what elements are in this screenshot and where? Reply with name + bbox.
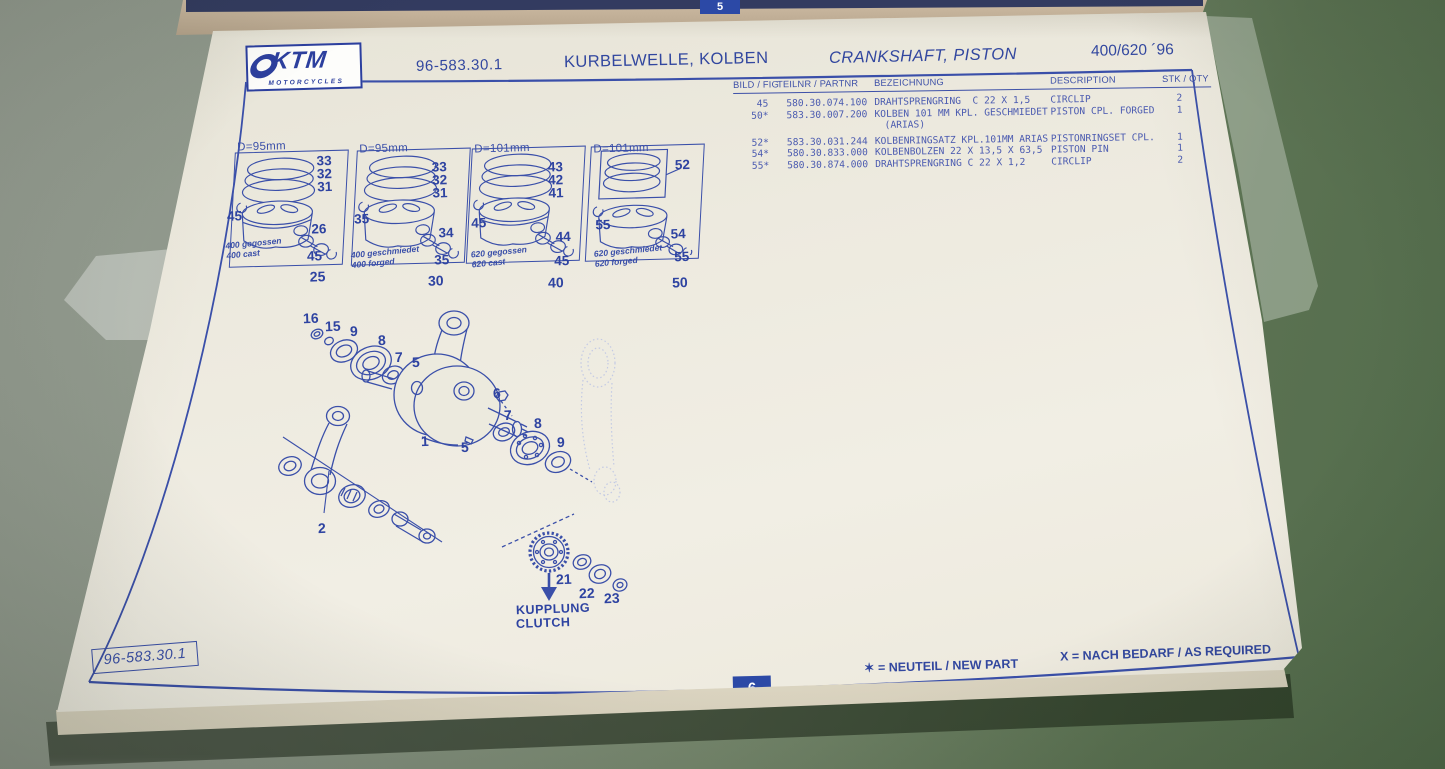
- ktm-logo: KTM MOTORCYCLES: [245, 42, 362, 91]
- part-number-label: 7: [395, 349, 403, 365]
- washer-near-21: [571, 552, 593, 571]
- seal-ring-9-right: [542, 448, 574, 476]
- page-title-english: CRANKSHAFT, PISTON: [829, 45, 1017, 68]
- piston-panel-620-cast: D=101mm 43 42 41 45 44: [467, 130, 595, 293]
- circlip-16: [310, 327, 325, 340]
- part-number-label: 55: [674, 249, 689, 264]
- part-number-label: 35: [354, 211, 369, 226]
- part-number-label: 7: [504, 407, 512, 423]
- part-number-label: 35: [434, 252, 449, 267]
- washer-15: [323, 336, 334, 346]
- previous-page-number-tab: 5: [700, 0, 740, 14]
- part-number-label: 45: [307, 248, 322, 263]
- document-number: 96-583.30.1: [416, 56, 503, 75]
- crankshaft-1: [362, 311, 528, 446]
- crankshaft-diagram: [276, 311, 629, 601]
- assembly-number: 50: [645, 273, 715, 291]
- model-year: 400/620 ´96: [1091, 41, 1174, 61]
- part-number-label: 22: [579, 585, 595, 602]
- piston-panel-620-forged: D=101mm 52 55 54 55: [586, 128, 714, 291]
- piston-panel-400-cast: D=95mm 33 32 31 45 26: [230, 134, 358, 297]
- clutch-caption-english: CLUTCH: [516, 615, 571, 631]
- col-desc-en: DESCRIPTION: [1050, 74, 1162, 86]
- part-number-label: 23: [604, 590, 620, 607]
- part-number-label: 2: [318, 520, 326, 536]
- part-number-label: 5: [412, 354, 420, 370]
- part-number-label: 45: [471, 215, 486, 230]
- part-number-label: 45: [554, 253, 569, 268]
- part-number-label: 26: [311, 221, 326, 236]
- assembly-number: 40: [521, 273, 591, 291]
- ghost-cam-chain: [581, 339, 620, 502]
- part-number-label: 55: [595, 217, 610, 232]
- col-fig: BILD / FIG: [733, 79, 777, 90]
- photo-of-parts-catalog: 5: [0, 0, 1445, 769]
- part-number-label: 1: [421, 433, 429, 449]
- part-number-label: 34: [438, 225, 453, 240]
- part-number-label: 41: [548, 185, 563, 200]
- part-number-label: 15: [325, 318, 341, 335]
- col-part: TEILNR / PARTNR: [777, 78, 874, 89]
- col-desc-de: BEZEICHNUNG: [874, 76, 1050, 88]
- piston-panel-400-forged: D=95mm 33 32 31 35 34 35: [352, 132, 480, 295]
- part-number-label: 16: [303, 310, 319, 327]
- part-number-label: 8: [534, 415, 542, 431]
- ktm-motorcycles-text: MOTORCYCLES: [268, 78, 344, 87]
- col-qty: STK / QTY: [1162, 73, 1208, 84]
- panel-caption: 620 gegossen 620 cast: [470, 244, 528, 269]
- part-number-label: 6: [493, 385, 501, 401]
- part-number-label: 9: [350, 323, 358, 339]
- parts-table: BILD / FIG TEILNR / PARTNR BEZEICHNUNG D…: [733, 73, 1212, 172]
- part-number-label: 8: [378, 332, 386, 348]
- assembly-number: 30: [401, 272, 471, 290]
- part-number-label: 31: [317, 179, 332, 194]
- primary-gear-21: [530, 533, 568, 571]
- part-number-label: 44: [555, 229, 570, 244]
- part-number-label: 54: [670, 226, 685, 241]
- part-number-label: 9: [557, 434, 565, 450]
- assembly-number: 25: [282, 267, 352, 285]
- ktm-brand-text: KTM: [270, 46, 328, 76]
- part-number-label: 31: [432, 185, 447, 200]
- part-number-label: 52: [675, 157, 690, 172]
- part-number-label: 45: [227, 208, 242, 223]
- part-number-label: 21: [556, 571, 572, 588]
- ring-22: [587, 562, 614, 586]
- seal-ring-9-left: [327, 336, 361, 367]
- part-number-label: 5: [461, 439, 469, 455]
